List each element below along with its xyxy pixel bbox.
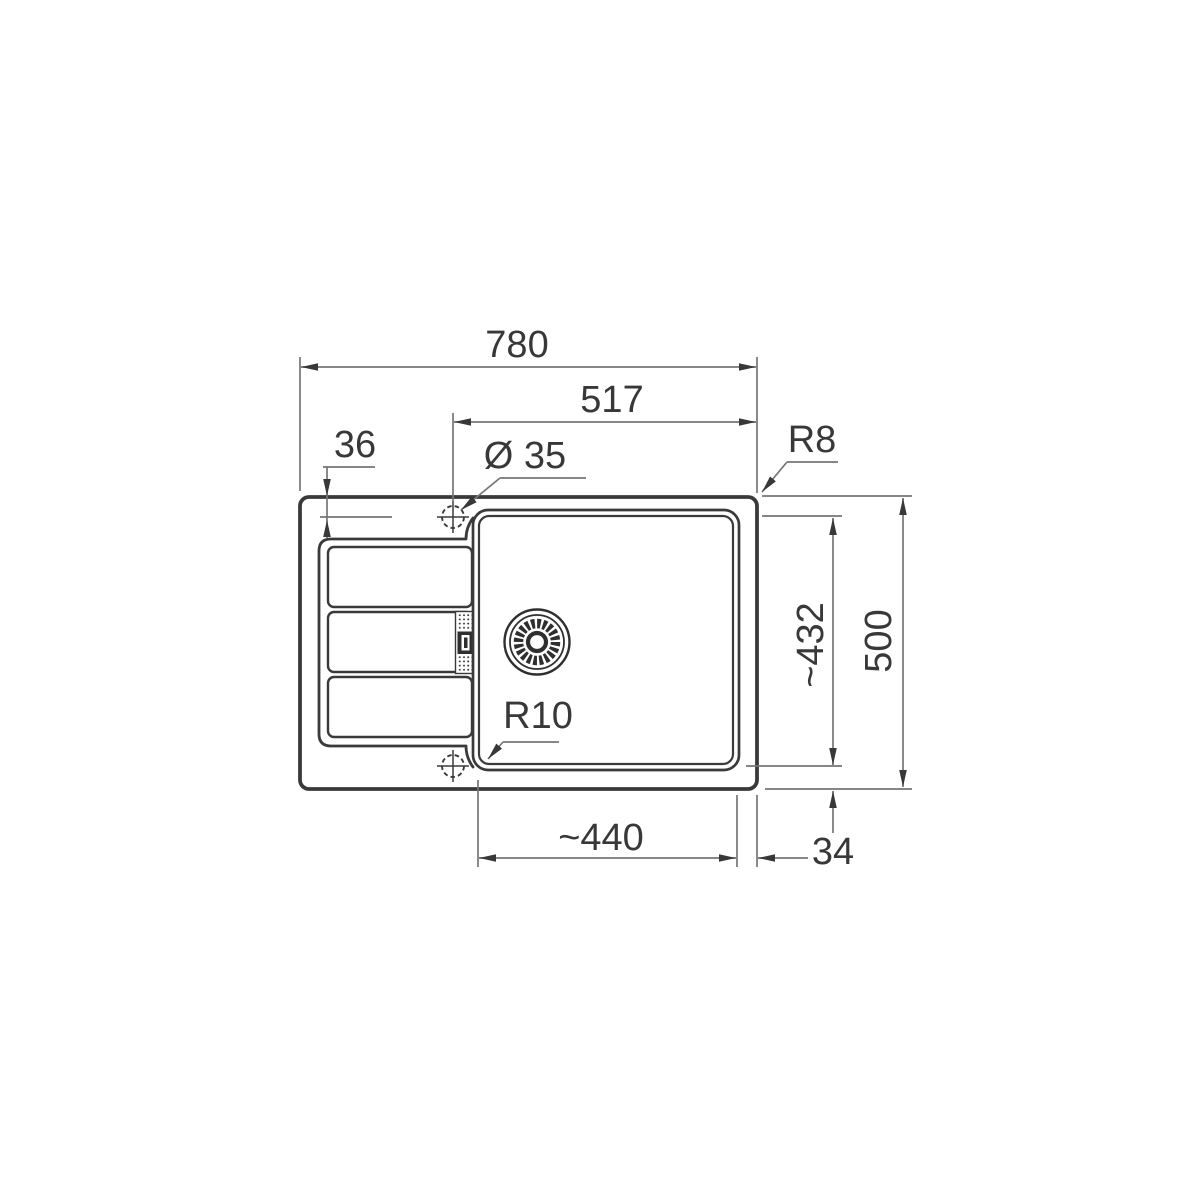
tap-centerline-offset-label: 36 <box>334 424 376 466</box>
bowl-corner-radius-label: R10 <box>503 695 573 737</box>
dim-overall-depth: 500 <box>762 496 912 789</box>
bowl-width-label: ~440 <box>558 817 644 859</box>
dim-bowl-depth: ~432 <box>746 516 842 766</box>
dim-bowl-to-edge-gap: 34 <box>737 791 854 873</box>
overflow-dot-grid-bottom <box>457 655 474 672</box>
tap-offset-label: 517 <box>580 379 643 421</box>
sink-plan-view <box>300 497 757 789</box>
tap-hole-diameter-label: Ø 35 <box>484 435 566 477</box>
outer-corner-radius-label: R8 <box>788 419 837 461</box>
drainer-rib-1 <box>328 547 472 607</box>
dim-outer-corner-radius: R8 <box>759 419 838 494</box>
bowl-edge-gap-label: 34 <box>812 831 854 873</box>
drawing-canvas: 780 517 36 Ø 35 <box>0 0 1200 1200</box>
drainer-rib-2 <box>328 612 472 672</box>
dim-bowl-width: ~440 <box>478 780 736 867</box>
overall-depth-label: 500 <box>858 609 900 672</box>
overflow-dot-grid-top <box>457 614 474 630</box>
overall-width-label: 780 <box>485 324 548 366</box>
bowl-depth-label: ~432 <box>790 602 832 688</box>
drainer-rib-3 <box>328 677 472 737</box>
sink-technical-drawing: 780 517 36 Ø 35 <box>0 0 1200 1200</box>
